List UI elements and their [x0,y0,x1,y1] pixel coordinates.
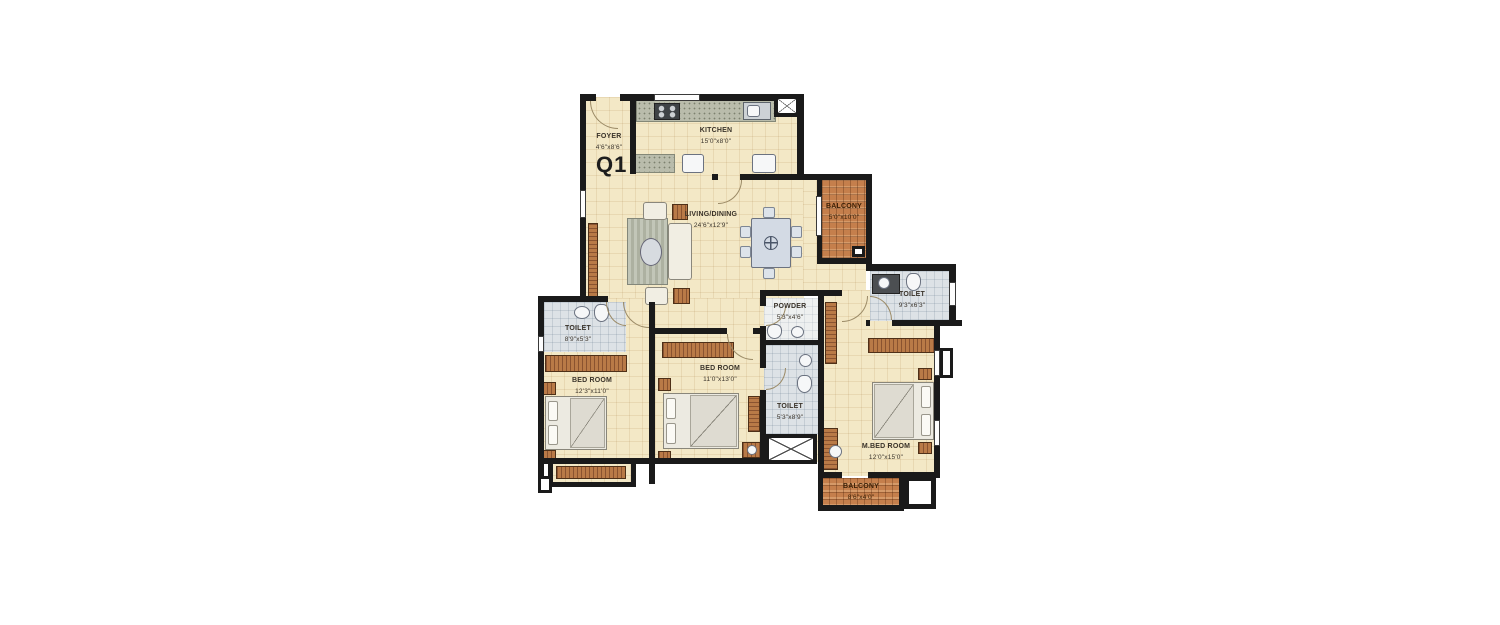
window-sill-master [940,348,953,378]
foyer-cabinet [588,223,598,298]
dining-table-compass-icon [764,236,778,250]
room-label-bedroom-left: BED ROOM 12'3"x11'0" [572,376,612,396]
room-dims: 9'3"x6'3" [899,301,926,311]
dining-chair-right-1 [791,226,802,238]
room-name: TOILET [777,402,804,413]
nightstand-left-1 [542,382,556,395]
wall-bedroom-left-south [544,458,654,464]
dresser-bedroom-middle [748,396,760,432]
basin-toilet-right-icon [878,277,890,289]
wc-toilet-right-icon [906,273,921,291]
room-dims: 15'0"x8'0" [700,137,733,147]
bed-middle-pillow-1 [666,398,676,419]
bed-master-pillow-1 [921,386,931,408]
bed-middle-blanket [690,395,737,447]
room-name: TOILET [565,324,592,335]
wall-master-east-2 [934,376,940,420]
bed-left-pillow-2 [548,425,558,445]
bed-master-pillow-2 [921,414,931,436]
dining-chair-right-2 [791,246,802,258]
wardrobe-bedroom-middle [662,342,734,358]
wardrobe-bay-left [556,466,626,479]
room-dims: 11'0"x13'0" [700,375,740,385]
unit-label: Q1 [596,154,627,176]
room-label-kitchen: KITCHEN 15'0"x8'0" [700,126,733,146]
wall-bedroom-middle-south [655,458,765,464]
room-dims: 8'9"x5'3" [565,335,592,345]
wall-toilet-right-bottom-1 [866,320,870,326]
dining-chair-left-1 [740,226,751,238]
wall-top-2 [620,94,654,101]
shower-toilet-middle-icon [799,354,812,367]
room-dims: 12'3"x11'0" [572,387,612,397]
wall-toilet-right-top [866,264,956,271]
basin-toilet-left-icon [574,306,590,319]
room-dims: 5'3"x4'6" [774,313,807,323]
wall-toilet-middle-west-1 [760,345,766,368]
room-dims: 5'3"x8'9" [777,413,804,423]
shaft-toilet-middle [765,434,817,464]
shaft-kitchen [774,95,800,117]
wall-bedroom-divider-stub [649,464,655,484]
room-label-balcony-top: BALCONY 5'0"x10'0" [826,202,862,222]
wall-living-west-1 [580,94,586,190]
wall-balcony-bottom-south [818,505,904,511]
bed-left-pillow-1 [548,401,558,421]
wall-bay-right [631,464,636,485]
wall-bay-south [548,482,636,487]
sofa [668,223,692,280]
floor-plan-canvas: Q1 FOYER 4'6"x8'6" KITCHEN 15'0"x8'0" LI… [0,0,1500,625]
kitchen-counter-lower [631,154,675,173]
wall-foyer-kitchen-stub [630,96,636,174]
dining-chair-left-2 [740,246,751,258]
room-name: POWDER [774,302,807,313]
ledge-bottom-right [904,476,936,509]
room-label-balcony-bottom: BALCONY 8'6"x4'0" [843,482,879,502]
wall-master-east-1 [934,326,940,350]
wall-living-west-2 [580,218,586,302]
dining-chair-bottom [763,268,775,279]
kitchen-appliance-1 [682,154,704,173]
kitchen-appliance-2 [752,154,776,173]
wc-powder-icon [767,324,782,339]
dining-chair-top [763,207,775,218]
wall-outer-left-1 [538,296,544,336]
nightstand-master-2 [918,442,932,454]
wall-toilet-right-east-1 [949,264,956,282]
bed-left-blanket [570,398,605,448]
bed-master-blanket [874,384,914,438]
room-label-living-dining: LIVING/DINING 24'6"x12'9" [685,210,737,230]
wardrobe-bedroom-left [545,355,627,372]
ledge-bottom-left [538,476,552,493]
room-label-powder: POWDER 5'3"x4'6" [774,302,807,322]
balcony-vent-box [852,246,865,257]
floor-plan-q1: Q1 FOYER 4'6"x8'6" KITCHEN 15'0"x8'0" LI… [530,90,975,522]
room-name: BALCONY [843,482,879,493]
room-name: KITCHEN [700,126,733,137]
side-table-bottom [673,288,690,304]
room-label-master-bedroom: M.BED ROOM 12'0"x15'0" [862,442,910,462]
nightstand-master-1 [918,368,932,380]
basin-powder-icon [791,326,804,338]
window-balcony-slider [816,196,822,236]
room-label-toilet-middle: TOILET 5'3"x8'9" [777,402,804,422]
wall-powder-toilet-divider [760,340,820,345]
wall-bedroom-middle-top-1 [655,328,727,334]
wall-powder-west-1 [760,290,766,306]
room-dims: 8'6"x4'0" [843,493,879,503]
room-name: LIVING/DINING [685,210,737,221]
coffee-table [640,238,662,266]
room-name: BED ROOM [572,376,612,387]
wall-master-west [818,296,824,478]
room-label-toilet-right: TOILET 9'3"x6'3" [899,290,926,310]
wall-toilet-right-bottom-2 [892,320,962,326]
wall-powder-top [760,290,842,296]
room-label-foyer: FOYER 4'6"x8'6" [596,132,623,152]
wall-powder-west-2 [760,326,766,340]
wall-bedroom-divider [649,302,655,464]
room-name: BALCONY [826,202,862,213]
room-dims: 12'0"x15'0" [862,453,910,463]
wardrobe-master-bedroom [868,338,936,353]
bed-middle-pillow-2 [666,423,676,444]
wall-kitchen-bottom-2 [740,174,872,180]
room-dims: 24'6"x12'9" [685,221,737,231]
stove-icon [654,103,680,120]
window-master-east-2 [934,420,940,446]
wc-toilet-middle-icon [797,375,812,393]
armchair-top [643,202,667,220]
wall-toilet-left-top [538,296,608,302]
room-dims: 4'6"x8'6" [596,143,623,153]
room-dims: 5'0"x10'0" [826,213,862,223]
room-name: M.BED ROOM [862,442,910,453]
kitchen-sink-bowl [747,105,760,117]
room-name: TOILET [899,290,926,301]
window-kitchen-top [654,94,700,101]
room-label-toilet-left: TOILET 8'9"x5'3" [565,324,592,344]
window-living-west [580,190,586,218]
basin-corridor-icon [747,445,757,455]
wall-balcony-top-right [866,174,872,264]
window-toilet-right [949,282,956,306]
wall-balcony-top-bottom [817,258,872,264]
stool-master-icon [829,445,842,458]
window-outer-left [538,336,544,352]
room-label-bedroom-middle: BED ROOM 11'0"x13'0" [700,364,740,384]
room-name: BED ROOM [700,364,740,375]
nightstand-middle-1 [658,378,671,391]
room-name: FOYER [596,132,623,143]
dresser-master-1 [825,302,837,364]
